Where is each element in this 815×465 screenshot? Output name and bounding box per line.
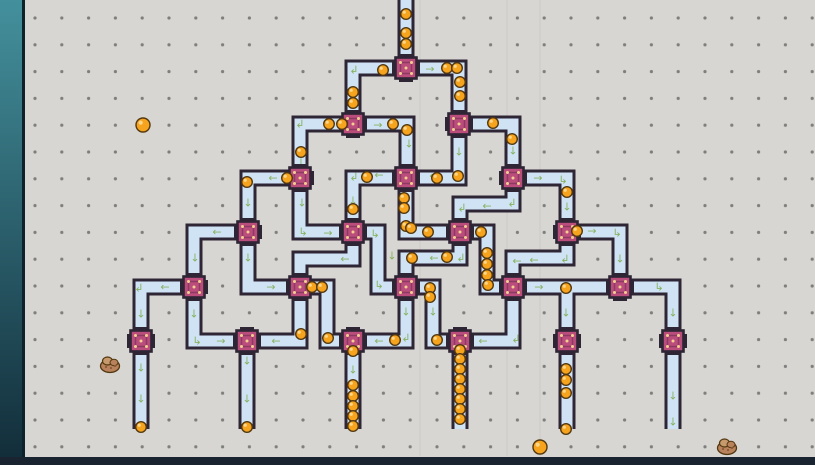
flow-arrow-icon: ↲ <box>401 332 410 345</box>
flow-arrow-icon: ↲ <box>349 64 358 77</box>
flow-arrow-icon: ↓ <box>242 355 251 368</box>
marble[interactable] <box>476 227 487 238</box>
marble[interactable] <box>432 173 443 184</box>
marble[interactable] <box>388 119 399 130</box>
flow-arrow-icon: ↓ <box>508 145 517 158</box>
marble[interactable] <box>482 248 493 259</box>
flow-arrow-icon: ↓ <box>189 308 198 321</box>
marble[interactable] <box>442 63 453 74</box>
marble[interactable] <box>402 125 413 136</box>
flow-arrow-icon: ↓ <box>668 416 677 429</box>
flow-arrow-icon: ↓ <box>242 393 251 406</box>
marble[interactable] <box>399 193 410 204</box>
flow-arrow-icon: ↳ <box>558 174 567 187</box>
marble[interactable] <box>242 177 253 188</box>
flow-arrow-icon: → <box>587 225 596 238</box>
marble[interactable] <box>348 380 359 391</box>
bin-node[interactable] <box>659 327 687 355</box>
flow-arrow-icon: ↲ <box>295 118 304 131</box>
marble[interactable] <box>390 335 401 346</box>
flow-arrow-icon: ↲ <box>560 253 569 266</box>
bottom-bar <box>0 457 815 465</box>
marble[interactable] <box>423 227 434 238</box>
marble[interactable] <box>455 404 466 415</box>
flow-arrow-icon: ↓ <box>561 307 570 320</box>
marble[interactable] <box>572 226 583 237</box>
splitter-node[interactable] <box>499 273 527 301</box>
flow-arrow-icon: ↲ <box>457 202 466 215</box>
marble[interactable] <box>425 292 436 303</box>
splitter-node[interactable] <box>499 164 527 192</box>
flow-arrow-icon: ↲ <box>507 197 516 210</box>
marble[interactable] <box>378 65 389 76</box>
marble[interactable] <box>348 87 359 98</box>
flow-arrow-icon: ↳ <box>374 279 383 292</box>
flow-arrow-icon: ← <box>478 335 487 348</box>
marble[interactable] <box>455 354 466 365</box>
flow-arrow-icon: → <box>533 172 542 185</box>
marble[interactable] <box>455 374 466 385</box>
pipe-network-canvas[interactable]: →↲↓→↲↓↓↓→↳↓←←↲←↓↓↳→↓↓↓↲←↲←↓↓→→↳↓↲←←←↲↓↳↳… <box>0 0 815 465</box>
marble[interactable] <box>401 39 412 50</box>
marble[interactable] <box>455 77 466 88</box>
marble[interactable] <box>561 283 572 294</box>
marble[interactable] <box>453 171 464 182</box>
marble[interactable] <box>362 172 373 183</box>
flow-arrow-icon: ← <box>429 252 438 265</box>
sidebar-edge-line <box>22 0 25 465</box>
flow-arrow-icon: ↓ <box>136 362 145 375</box>
marble[interactable] <box>348 411 359 422</box>
marble[interactable] <box>442 252 453 263</box>
flow-arrow-icon: ↲ <box>134 282 143 295</box>
game-viewport: →↲↓→↲↓↓↓→↳↓←←↲←↓↓↳→↓↓↓↲←↲←↓↓→→↳↓↲←←←↲↓↳↳… <box>0 0 815 465</box>
marble[interactable] <box>401 28 412 39</box>
flow-arrow-icon: → <box>373 119 382 132</box>
flow-arrow-icon: ← <box>512 255 521 268</box>
flow-arrow-icon: ↓ <box>404 138 413 151</box>
flow-arrow-icon: ↓ <box>428 306 437 319</box>
splitter-node[interactable] <box>445 110 473 138</box>
marble[interactable] <box>561 364 572 375</box>
flow-arrow-icon: ↓ <box>243 197 252 210</box>
flow-arrow-icon: ← <box>374 169 383 182</box>
marble[interactable] <box>455 394 466 405</box>
marble[interactable] <box>455 414 466 425</box>
marble[interactable] <box>455 384 466 395</box>
splitter-node[interactable] <box>180 273 208 301</box>
flow-arrow-icon: ← <box>529 254 538 267</box>
marble[interactable] <box>562 187 573 198</box>
flow-arrow-icon: ↳ <box>192 335 201 348</box>
marble[interactable] <box>507 134 518 145</box>
flow-arrow-icon: ← <box>340 253 349 266</box>
marble[interactable] <box>482 259 493 270</box>
bin-node[interactable] <box>127 327 155 355</box>
flow-arrow-icon: ↳ <box>298 226 307 239</box>
flow-arrow-icon: ← <box>374 335 383 348</box>
splitter-node[interactable] <box>234 218 262 246</box>
flow-arrow-icon: ↲ <box>456 252 465 265</box>
flow-arrow-icon: ↳ <box>654 281 663 294</box>
marble[interactable] <box>561 375 572 386</box>
flow-arrow-icon: ↲ <box>511 333 520 346</box>
flow-arrow-icon: ↳ <box>370 228 379 241</box>
marble[interactable] <box>317 282 328 293</box>
marble[interactable] <box>401 9 412 20</box>
marble[interactable] <box>348 421 359 432</box>
flow-arrow-icon: ← <box>271 335 280 348</box>
flow-arrow-icon: ← <box>268 172 277 185</box>
flow-arrow-icon: → <box>534 281 543 294</box>
marble[interactable] <box>455 364 466 375</box>
flow-arrow-icon: ↓ <box>136 308 145 321</box>
marble[interactable] <box>337 119 348 130</box>
flow-arrow-icon: ↓ <box>387 250 396 263</box>
marble[interactable] <box>348 401 359 412</box>
flow-arrow-icon: → <box>425 63 434 76</box>
marble[interactable] <box>482 270 493 281</box>
marble[interactable] <box>533 440 547 454</box>
flow-arrow-icon: → <box>323 227 332 240</box>
marble[interactable] <box>406 223 417 234</box>
flow-arrow-icon: ← <box>160 281 169 294</box>
splitter-node[interactable] <box>446 218 474 246</box>
marble[interactable] <box>348 204 359 215</box>
flow-arrow-icon: → <box>216 335 225 348</box>
flow-arrow-icon: ↓ <box>615 253 624 266</box>
flow-arrow-icon: ↓ <box>668 307 677 320</box>
splitter-node[interactable] <box>392 273 420 301</box>
marble[interactable] <box>296 329 307 340</box>
marble[interactable] <box>136 422 147 433</box>
bin-node[interactable] <box>233 327 261 355</box>
marble[interactable] <box>348 391 359 402</box>
marble[interactable] <box>348 346 359 357</box>
marble[interactable] <box>432 335 443 346</box>
marble[interactable] <box>455 91 466 102</box>
flow-arrow-icon: ↓ <box>136 393 145 406</box>
marble[interactable] <box>324 119 335 130</box>
marble[interactable] <box>399 203 410 214</box>
splitter-node[interactable] <box>606 273 634 301</box>
marble[interactable] <box>407 253 418 264</box>
sidebar-gradient-strip <box>0 0 22 465</box>
splitter-node[interactable] <box>339 218 367 246</box>
marble[interactable] <box>323 333 334 344</box>
marble[interactable] <box>452 63 463 74</box>
flow-arrow-icon: ↓ <box>297 197 306 210</box>
flow-arrow-icon: ← <box>482 200 491 213</box>
splitter-node[interactable] <box>392 54 420 82</box>
flow-arrow-icon: ↓ <box>190 252 199 265</box>
splitter-node[interactable] <box>392 164 420 192</box>
flow-arrow-icon: ↓ <box>401 306 410 319</box>
flow-arrow-icon: ↓ <box>562 201 571 214</box>
marble[interactable] <box>282 173 293 184</box>
marble[interactable] <box>242 422 253 433</box>
flow-arrow-icon: ↓ <box>668 390 677 403</box>
marble[interactable] <box>348 98 359 109</box>
flow-arrow-icon: → <box>266 281 275 294</box>
marble[interactable] <box>296 147 307 158</box>
flow-arrow-icon: ↓ <box>454 146 463 159</box>
bin-node[interactable] <box>553 327 581 355</box>
marble[interactable] <box>136 118 150 132</box>
flow-arrow-icon: ↳ <box>612 227 621 240</box>
flow-arrow-icon: ↓ <box>348 364 357 377</box>
marble[interactable] <box>488 118 499 129</box>
flow-arrow-icon: ↓ <box>243 252 252 265</box>
marble[interactable] <box>561 424 572 435</box>
marble[interactable] <box>307 282 318 293</box>
marble[interactable] <box>483 280 494 291</box>
flow-arrow-icon: ↲ <box>349 171 358 184</box>
marble[interactable] <box>561 388 572 399</box>
flow-arrow-icon: ← <box>212 226 221 239</box>
